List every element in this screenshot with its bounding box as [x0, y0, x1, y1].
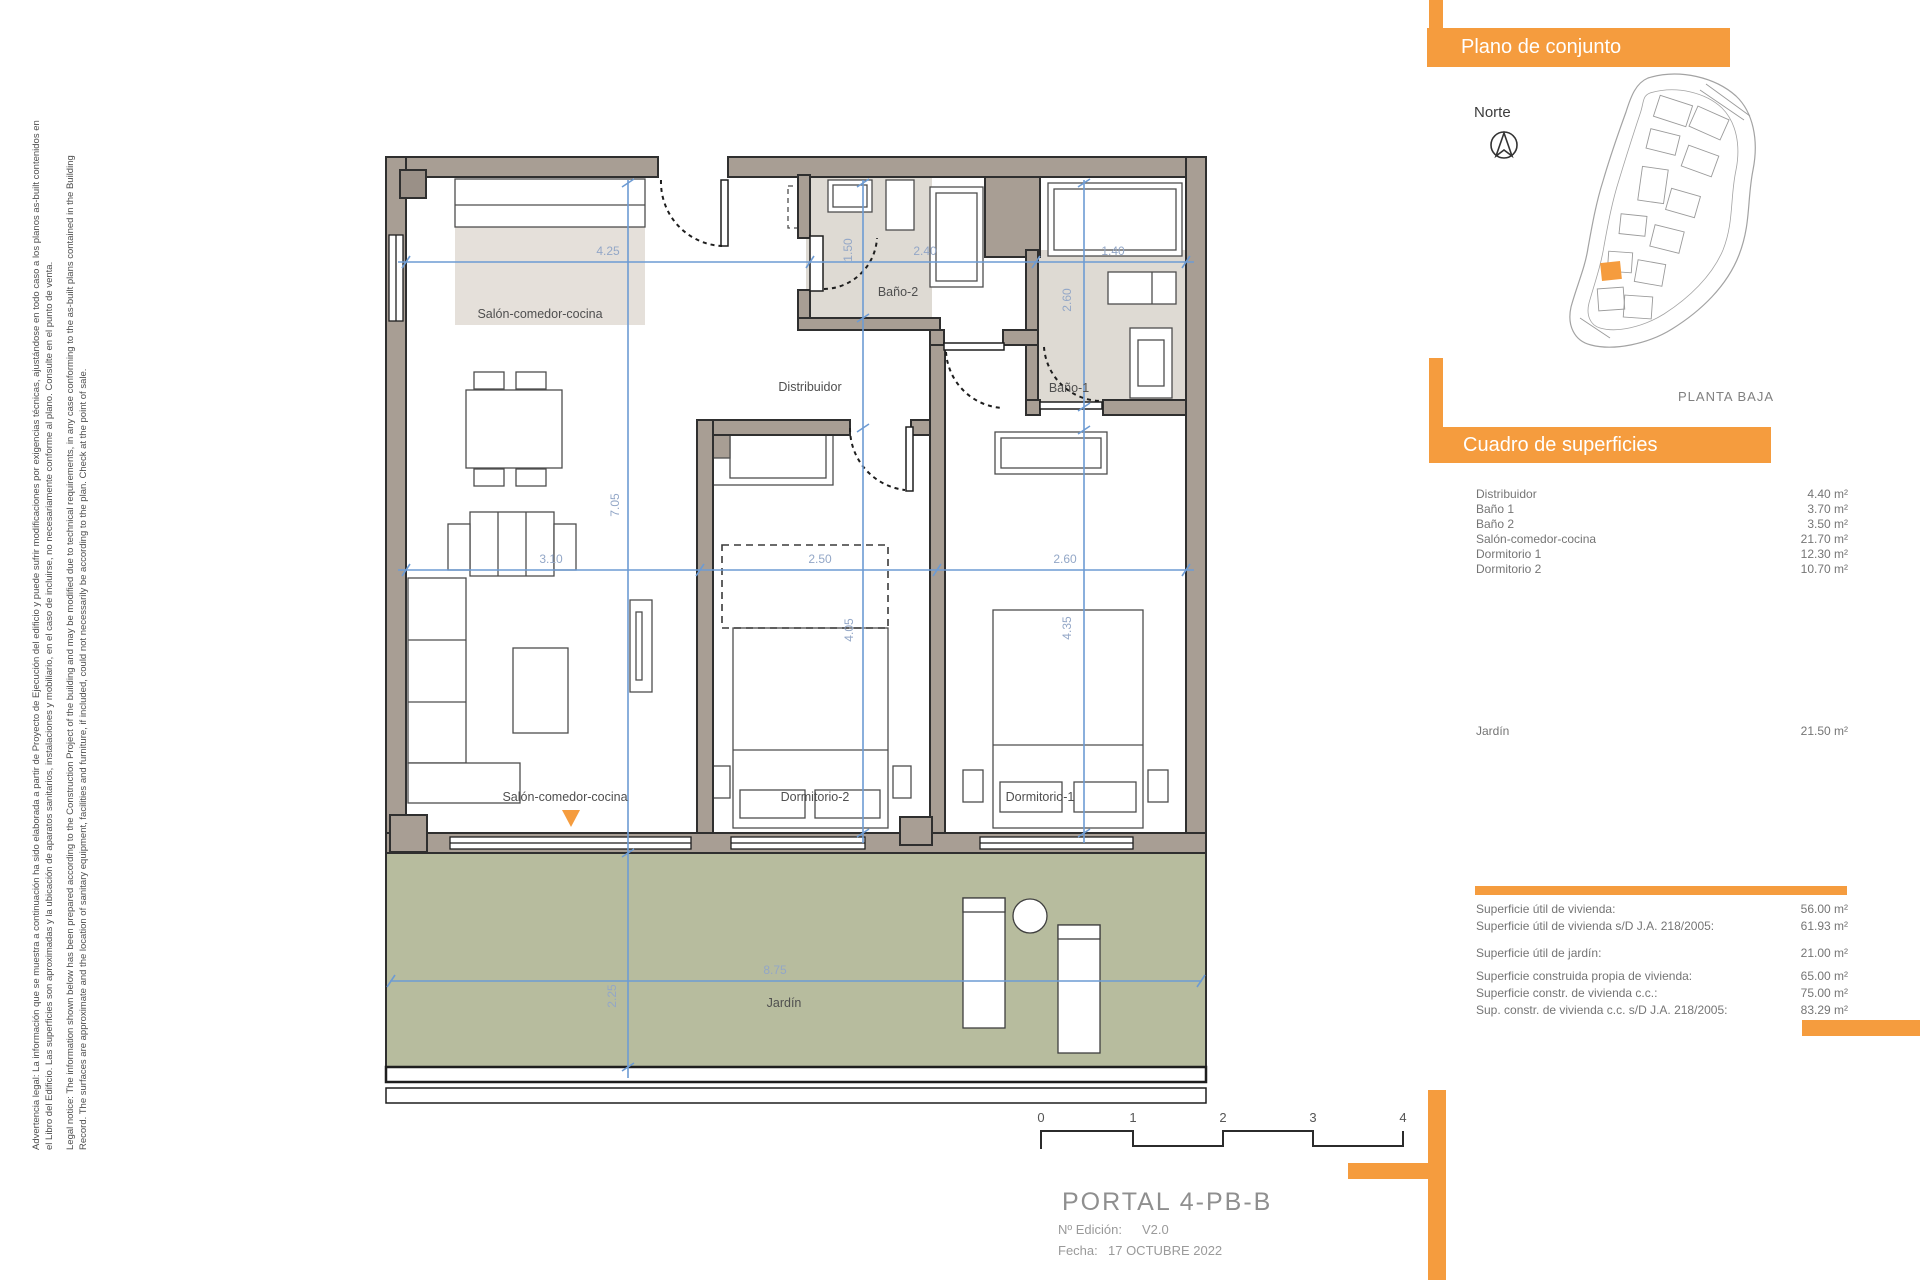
surfaces-title-banner: Cuadro de superficies: [1429, 427, 1771, 463]
scale-bar: 0 1 2 3 4: [1037, 1110, 1406, 1149]
corner-shaft: [400, 170, 426, 198]
dim-1-40: 1.40: [1101, 244, 1125, 258]
dim-8-75: 8.75: [763, 963, 787, 977]
summary-row-constr-cc: Superficie constr. de vivienda c.c.: 75.…: [1476, 986, 1848, 1003]
surface-row-salon: Salón-comedor-cocina 21.70 m²: [1476, 532, 1848, 548]
label-salon-bottom: Salón-comedor-cocina: [502, 790, 627, 804]
surface-value: 21.50 m²: [1801, 724, 1848, 740]
north-label: Norte: [1474, 104, 1511, 121]
site-panel-title: Plano de conjunto: [1461, 36, 1621, 58]
summary-bottom-bar: [1802, 1020, 1920, 1036]
surface-row-distribuidor: Distribuidor 4.40 m²: [1476, 487, 1848, 503]
dim-3-10: 3.10: [539, 552, 563, 566]
dim-4-35: 4.35: [1060, 616, 1074, 640]
site-panel-title-banner: Plano de conjunto: [1427, 28, 1730, 67]
summary-label: Superficie constr. de vivienda c.c.:: [1476, 986, 1657, 1003]
label-jardin: Jardín: [767, 996, 802, 1010]
summary-row-constr-cc-ja: Sup. constr. de vivienda c.c. s/D J.A. 2…: [1476, 1003, 1848, 1020]
dim-2-60v: 2.60: [1060, 288, 1074, 312]
dim-4-05: 4.05: [842, 618, 856, 642]
summary-value: 21.00 m²: [1801, 946, 1848, 963]
surface-row-bano2: Baño 2 3.50 m²: [1476, 517, 1848, 533]
surface-row-dorm2: Dormitorio 2 10.70 m²: [1476, 562, 1848, 578]
summary-value: 61.93 m²: [1801, 919, 1848, 936]
scale-tick-2: 2: [1219, 1110, 1226, 1125]
summary-label: Superficie construida propia de vivienda…: [1476, 969, 1692, 986]
north-compass-icon: [1491, 132, 1517, 158]
surface-value: 12.30 m²: [1801, 547, 1848, 563]
label-bano1: Baño-1: [1049, 381, 1089, 395]
surface-value: 3.50 m²: [1807, 517, 1848, 533]
surface-value: 21.70 m²: [1801, 532, 1848, 548]
surface-row-jardin: Jardín 21.50 m²: [1476, 724, 1848, 740]
summary-value: 75.00 m²: [1801, 986, 1848, 1003]
scale-tick-3: 3: [1309, 1110, 1316, 1125]
bathroom1-toilet: [1130, 328, 1172, 398]
summary-top-bar: [1475, 886, 1847, 895]
site-plan-highlight-unit: [1600, 261, 1622, 281]
date-label: Fecha:: [1058, 1243, 1098, 1258]
coffee-table: [513, 648, 568, 733]
sheet-title: PORTAL 4-PB-B: [1062, 1188, 1272, 1217]
scale-tick-4: 4: [1399, 1110, 1406, 1125]
dim-4-25: 4.25: [596, 244, 620, 258]
floor-plan-drawing: 4.25 2.40 1.40 3.10 2.50 2.60 7.05 1.50 …: [0, 0, 1920, 1280]
surface-value: 4.40 m²: [1807, 487, 1848, 503]
frame-bar-vertical: [1428, 1090, 1446, 1280]
bathroom2-toilet: [886, 180, 914, 230]
surface-label: Distribuidor: [1476, 487, 1537, 503]
edition-label: Nº Edición:: [1058, 1222, 1122, 1237]
dorm1-wardrobe: [995, 432, 1107, 474]
summary-label: Superficie útil de vivienda:: [1476, 902, 1615, 919]
bathroom1-sink: [1108, 272, 1176, 304]
surface-label: Jardín: [1476, 724, 1509, 740]
label-dorm2: Dormitorio-2: [781, 790, 850, 804]
surface-label: Baño 1: [1476, 502, 1514, 518]
dim-2-40: 2.40: [913, 244, 937, 258]
summary-label: Sup. constr. de vivienda c.c. s/D J.A. 2…: [1476, 1003, 1727, 1020]
surface-label: Salón-comedor-cocina: [1476, 532, 1596, 548]
surface-value: 10.70 m²: [1801, 562, 1848, 578]
summary-row-util-vivienda-ja: Superficie útil de vivienda s/D J.A. 218…: [1476, 919, 1848, 936]
dim-1-50: 1.50: [841, 238, 855, 262]
edition-value: V2.0: [1142, 1222, 1169, 1237]
dim-2-50: 2.50: [808, 552, 832, 566]
summary-value: 56.00 m²: [1801, 902, 1848, 919]
scale-tick-1: 1: [1129, 1110, 1136, 1125]
summary-row-util-vivienda: Superficie útil de vivienda: 56.00 m²: [1476, 902, 1848, 919]
surface-label: Dormitorio 1: [1476, 547, 1541, 563]
surfaces-panel-title: Cuadro de superficies: [1463, 434, 1658, 456]
dim-2-60h: 2.60: [1053, 552, 1077, 566]
scale-tick-0: 0: [1037, 1110, 1044, 1125]
surface-label: Dormitorio 2: [1476, 562, 1541, 578]
surface-row-bano1: Baño 1 3.70 m²: [1476, 502, 1848, 518]
surface-label: Baño 2: [1476, 517, 1514, 533]
tv-unit: [630, 600, 652, 692]
surface-value: 3.70 m²: [1807, 502, 1848, 518]
surface-row-dorm1: Dormitorio 1 12.30 m²: [1476, 547, 1848, 563]
label-distribuidor: Distribuidor: [778, 380, 841, 394]
label-bano2: Baño-2: [878, 285, 918, 299]
summary-row-construida: Superficie construida propia de vivienda…: [1476, 969, 1848, 986]
surfaces-banner-stub: [1429, 358, 1443, 427]
top-right-tab: [1429, 0, 1443, 28]
summary-label: Superficie útil de jardín:: [1476, 946, 1601, 963]
label-salon-top: Salón-comedor-cocina: [477, 307, 602, 321]
dim-2-25: 2.25: [605, 984, 619, 1008]
date-value: 17 OCTUBRE 2022: [1108, 1243, 1222, 1258]
summary-value: 83.29 m²: [1801, 1003, 1848, 1020]
site-plan-map: [1570, 74, 1755, 347]
summary-row-util-jardin: Superficie útil de jardín: 21.00 m²: [1476, 946, 1848, 963]
label-dorm1: Dormitorio-1: [1006, 790, 1075, 804]
shower: [930, 187, 983, 287]
bathroom2-sink: [828, 180, 872, 212]
dim-7-05: 7.05: [608, 493, 622, 517]
planta-baja-label: PLANTA BAJA: [1678, 389, 1774, 404]
frame-bar-horizontal: [1348, 1163, 1428, 1179]
summary-value: 65.00 m²: [1801, 969, 1848, 986]
summary-label: Superficie útil de vivienda s/D J.A. 218…: [1476, 919, 1714, 936]
kitchen-counter: [455, 179, 645, 227]
